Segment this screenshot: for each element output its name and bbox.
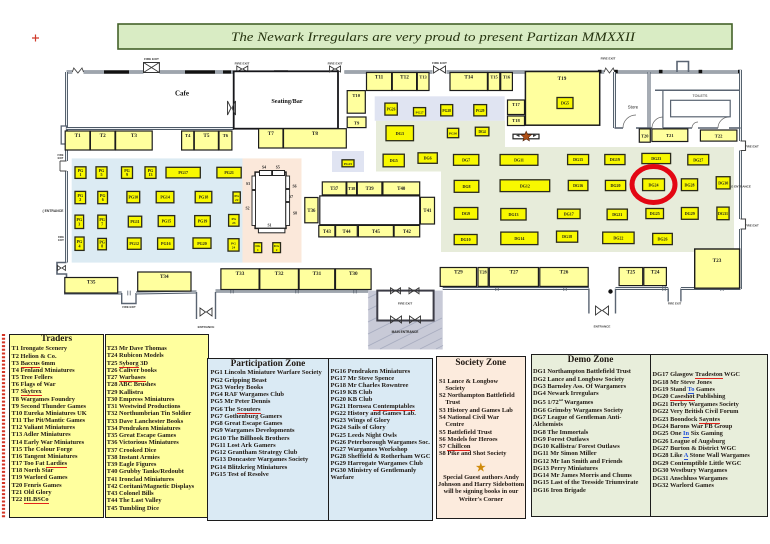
svg-text:DG8: DG8 bbox=[463, 184, 471, 189]
svg-text:DG23: DG23 bbox=[651, 156, 661, 161]
svg-text:T41: T41 bbox=[423, 209, 432, 214]
svg-text:FIRE EXIT: FIRE EXIT bbox=[328, 62, 343, 66]
svg-text:24: 24 bbox=[232, 246, 236, 250]
svg-text:T30: T30 bbox=[349, 271, 358, 277]
svg-text:FIRE EXIT: FIRE EXIT bbox=[745, 224, 759, 228]
svg-text:T8: T8 bbox=[312, 131, 318, 137]
svg-text:S8: S8 bbox=[293, 212, 297, 216]
svg-text:DG15: DG15 bbox=[573, 157, 583, 162]
svg-text:S2: S2 bbox=[245, 207, 249, 211]
svg-text:T45: T45 bbox=[372, 230, 381, 235]
svg-text:T36: T36 bbox=[307, 209, 316, 214]
svg-text:S4: S4 bbox=[262, 165, 266, 169]
svg-text:PG26: PG26 bbox=[387, 108, 396, 112]
svg-text:T31: T31 bbox=[313, 271, 322, 277]
svg-text:T39: T39 bbox=[366, 187, 375, 192]
svg-text:T10: T10 bbox=[352, 93, 360, 98]
svg-text:T24: T24 bbox=[651, 270, 660, 276]
svg-text:7: 7 bbox=[101, 221, 103, 226]
svg-text:8: 8 bbox=[101, 244, 103, 249]
svg-text:T19: T19 bbox=[558, 76, 567, 82]
svg-text:T20: T20 bbox=[641, 134, 649, 139]
svg-text:PG20: PG20 bbox=[197, 241, 207, 246]
svg-text:T3: T3 bbox=[131, 133, 137, 139]
svg-text:T14: T14 bbox=[464, 75, 473, 81]
svg-text:T40: T40 bbox=[397, 187, 406, 192]
svg-text:T11: T11 bbox=[375, 75, 384, 81]
svg-text:T29: T29 bbox=[454, 270, 463, 276]
svg-text:T1: T1 bbox=[75, 133, 81, 139]
svg-text:T5: T5 bbox=[203, 133, 209, 139]
svg-text:DG29: DG29 bbox=[685, 211, 695, 216]
svg-text:EXIT: EXIT bbox=[58, 238, 64, 242]
svg-text:FIRE EXIT: FIRE EXIT bbox=[235, 62, 250, 66]
svg-text:( ENTRANCE: ( ENTRANCE bbox=[43, 209, 65, 213]
svg-text:PG17: PG17 bbox=[178, 170, 188, 175]
svg-text:6: 6 bbox=[102, 197, 104, 202]
svg-text:T12: T12 bbox=[400, 75, 409, 81]
svg-text:DG6: DG6 bbox=[424, 156, 432, 161]
svg-text:PG15: PG15 bbox=[162, 219, 172, 224]
svg-text:23: 23 bbox=[232, 221, 236, 225]
svg-text:PG14: PG14 bbox=[160, 195, 170, 200]
svg-text:1: 1 bbox=[257, 248, 259, 252]
svg-text:9: 9 bbox=[126, 172, 128, 177]
svg-text:DG30: DG30 bbox=[718, 180, 728, 185]
svg-text:S5: S5 bbox=[276, 165, 280, 169]
svg-text:T34: T34 bbox=[160, 274, 169, 280]
svg-text:TOILETS: TOILETS bbox=[693, 94, 709, 98]
svg-text:T37: T37 bbox=[330, 187, 339, 192]
svg-text:T33: T33 bbox=[236, 271, 245, 277]
svg-text:T7: T7 bbox=[268, 131, 274, 137]
svg-text:T21: T21 bbox=[666, 133, 674, 138]
svg-text:PG30: PG30 bbox=[449, 132, 457, 136]
svg-text:FIRE EXIT: FIRE EXIT bbox=[668, 302, 682, 306]
svg-text:DG11: DG11 bbox=[514, 158, 524, 163]
svg-text:5: 5 bbox=[101, 172, 103, 177]
svg-text:DG13: DG13 bbox=[509, 212, 519, 217]
svg-text:T35: T35 bbox=[87, 280, 96, 286]
svg-text:DG28: DG28 bbox=[685, 182, 695, 187]
svg-text:FIRE EXIT: FIRE EXIT bbox=[745, 145, 759, 149]
svg-text:FIRE EXIT: FIRE EXIT bbox=[601, 57, 616, 61]
svg-text:4: 4 bbox=[79, 243, 81, 248]
svg-text:DG9: DG9 bbox=[462, 211, 470, 216]
svg-text:PG25: PG25 bbox=[344, 162, 352, 166]
svg-text:PG21: PG21 bbox=[224, 170, 234, 175]
svg-text:1: 1 bbox=[80, 172, 82, 177]
svg-text:DG31: DG31 bbox=[718, 211, 728, 216]
svg-text:T23: T23 bbox=[713, 258, 722, 264]
svg-text:DG21: DG21 bbox=[612, 212, 622, 217]
svg-text:PG27: PG27 bbox=[416, 110, 424, 114]
svg-text:DG3: DG3 bbox=[396, 131, 404, 136]
svg-text:T25: T25 bbox=[627, 270, 636, 276]
svg-text:MAIN ENTRANCE: MAIN ENTRANCE bbox=[392, 330, 419, 334]
svg-text:T15: T15 bbox=[490, 75, 498, 80]
svg-text:PG10: PG10 bbox=[129, 195, 139, 200]
svg-text:T13: T13 bbox=[419, 75, 427, 80]
svg-text:DG5: DG5 bbox=[390, 158, 398, 163]
svg-text:T2: T2 bbox=[100, 133, 106, 139]
svg-text:PG16: PG16 bbox=[161, 241, 171, 246]
svg-text:FIRE EXIT: FIRE EXIT bbox=[432, 61, 447, 65]
svg-text:2: 2 bbox=[276, 248, 278, 252]
svg-text:PG12: PG12 bbox=[129, 241, 139, 246]
svg-text:DG22: DG22 bbox=[613, 235, 623, 240]
svg-text:FIRE EXIT: FIRE EXIT bbox=[122, 305, 136, 309]
svg-text:13: 13 bbox=[149, 172, 153, 177]
svg-text:T38: T38 bbox=[348, 186, 356, 191]
svg-text:S6: S6 bbox=[292, 184, 296, 188]
svg-text:Cafe: Cafe bbox=[175, 90, 189, 98]
svg-text:S1: S1 bbox=[267, 224, 271, 228]
svg-text:3: 3 bbox=[78, 221, 80, 226]
svg-text:T42: T42 bbox=[403, 230, 412, 235]
svg-text:DG10: DG10 bbox=[461, 237, 471, 242]
svg-text:T43: T43 bbox=[323, 230, 332, 235]
svg-text:T44: T44 bbox=[343, 230, 352, 235]
svg-text:DG24: DG24 bbox=[649, 182, 659, 187]
svg-text:S7: S7 bbox=[289, 195, 293, 199]
svg-text:DG25: DG25 bbox=[650, 211, 660, 216]
svg-text:T18: T18 bbox=[512, 118, 520, 123]
svg-text:T26: T26 bbox=[560, 270, 569, 276]
svg-text:Store: Store bbox=[628, 105, 639, 110]
svg-text:T6: T6 bbox=[223, 133, 229, 138]
svg-text:FIRE EXIT: FIRE EXIT bbox=[144, 57, 159, 61]
svg-text:ENTRANCE: ENTRANCE bbox=[594, 325, 611, 329]
svg-text:DG14: DG14 bbox=[514, 236, 524, 241]
svg-text:DG16: DG16 bbox=[573, 183, 583, 188]
svg-text:22: 22 bbox=[235, 198, 239, 202]
svg-text:DG19: DG19 bbox=[610, 157, 620, 162]
svg-text:DG26: DG26 bbox=[658, 237, 668, 242]
svg-text:FIRE EXIT: FIRE EXIT bbox=[398, 302, 413, 306]
svg-text:PG18: PG18 bbox=[199, 195, 209, 200]
svg-text:DG5: DG5 bbox=[561, 101, 569, 106]
svg-text:T27: T27 bbox=[510, 270, 519, 276]
svg-text:T28: T28 bbox=[479, 270, 487, 275]
svg-text:DG12: DG12 bbox=[520, 183, 530, 188]
svg-text:S3: S3 bbox=[246, 182, 250, 186]
svg-text:DG7: DG7 bbox=[462, 158, 470, 163]
svg-text:PG29: PG29 bbox=[476, 109, 485, 113]
svg-text:The Newark Irregulars are very: The Newark Irregulars are very proud to … bbox=[231, 29, 636, 44]
svg-text:DG27: DG27 bbox=[693, 157, 703, 162]
svg-text:T22: T22 bbox=[715, 134, 723, 139]
svg-text:DG17: DG17 bbox=[564, 211, 574, 216]
svg-text:DG20: DG20 bbox=[611, 183, 621, 188]
svg-text:LG ENTRANCE: LG ENTRANCE bbox=[729, 185, 751, 189]
svg-text:PG19: PG19 bbox=[198, 219, 208, 224]
svg-text:T32: T32 bbox=[275, 271, 284, 277]
svg-text:ENTRANCE: ENTRANCE bbox=[198, 325, 215, 329]
svg-text:T9: T9 bbox=[354, 120, 360, 125]
svg-text:T4: T4 bbox=[185, 133, 191, 138]
svg-text:T16: T16 bbox=[503, 75, 511, 80]
svg-text:DG18: DG18 bbox=[562, 234, 572, 239]
svg-text:DG4: DG4 bbox=[479, 130, 486, 134]
svg-text:PG11: PG11 bbox=[130, 219, 139, 224]
svg-text:2: 2 bbox=[79, 197, 81, 202]
svg-text:Seating/Bar: Seating/Bar bbox=[271, 98, 303, 105]
svg-text:PG28: PG28 bbox=[442, 109, 451, 113]
svg-text:T17: T17 bbox=[512, 102, 520, 107]
svg-text:EXIT: EXIT bbox=[58, 156, 64, 160]
